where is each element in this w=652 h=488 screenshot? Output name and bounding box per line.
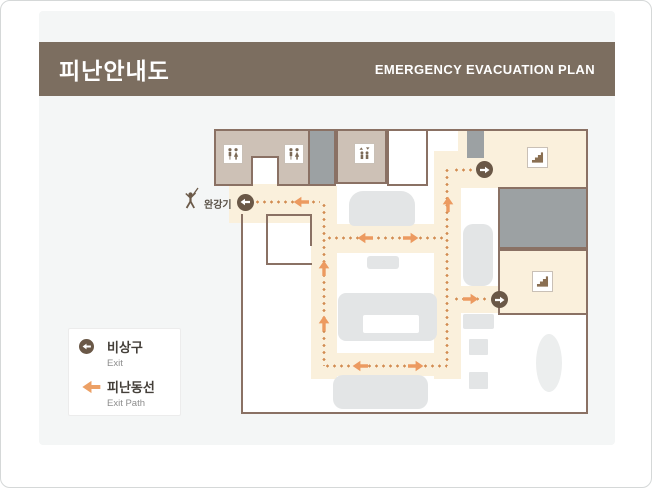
elevator-icon	[354, 143, 375, 164]
furniture-tall-cabinet	[463, 224, 493, 286]
path-arrow-icon	[293, 196, 309, 208]
header-bar: 피난안내도 EMERGENCY EVACUATION PLAN	[39, 42, 615, 96]
exit-circle-icon	[491, 291, 508, 308]
path-arrow-icon	[318, 315, 330, 331]
gray-room-right	[498, 187, 588, 249]
descender-label: 완강기	[204, 196, 232, 211]
exit-path-dotted-bottom	[324, 364, 447, 368]
shaft-block-right	[467, 129, 484, 158]
furniture-table-notch	[363, 315, 419, 333]
exit-path-dotted-top-left	[254, 200, 320, 204]
wall-right	[586, 129, 588, 414]
legend-exit-label: 비상구	[107, 337, 143, 356]
wall-interior-stub	[310, 214, 312, 246]
path-arrow-icon	[408, 360, 424, 372]
exit-path-dotted-vertical-left	[322, 202, 326, 366]
wall-top	[214, 129, 588, 131]
furniture-ellipse	[536, 334, 562, 392]
restroom-icon	[284, 144, 304, 164]
path-arrow-icon	[318, 260, 330, 276]
shaft-block-top	[308, 129, 336, 186]
room-top-center	[387, 129, 428, 186]
furniture-box-2	[469, 372, 488, 389]
furniture-sofa	[349, 191, 415, 226]
page-title: 피난안내도	[59, 52, 170, 86]
legend-path-label: 피난동선	[107, 377, 155, 396]
exit-path-dotted-top-right	[453, 168, 475, 172]
room-left-interior	[266, 214, 312, 265]
legend-path-arrow-icon	[81, 380, 101, 394]
exit-circle-icon	[237, 194, 254, 211]
furniture-bottom-table	[333, 375, 428, 409]
descender-person-icon	[184, 187, 201, 210]
furniture-box-1	[469, 339, 488, 355]
legend-path-sublabel: Exit Path	[107, 398, 145, 409]
path-arrow-icon	[352, 360, 368, 372]
restroom-door-opening	[253, 184, 277, 188]
wall-bottom	[241, 412, 588, 414]
legend-box: 비상구 Exit 피난동선 Exit Path	[68, 328, 181, 416]
legend-exit-sublabel: Exit	[107, 358, 123, 369]
path-arrow-icon	[442, 196, 454, 212]
restroom-doorway	[251, 156, 279, 186]
page-subtitle: EMERGENCY EVACUATION PLAN	[375, 62, 595, 77]
restroom-icon	[223, 144, 243, 164]
path-arrow-icon	[463, 293, 479, 305]
wall-left	[241, 214, 243, 414]
furniture-counter	[463, 314, 494, 329]
evacuation-plan-page: 피난안내도 EMERGENCY EVACUATION PLAN	[0, 0, 652, 488]
stairs-icon	[527, 147, 548, 168]
exit-circle-icon	[476, 161, 493, 178]
exit-path-dotted-middle	[326, 236, 447, 240]
stairs-icon	[532, 271, 553, 292]
path-arrow-icon	[403, 232, 419, 244]
furniture-small-table	[367, 256, 399, 269]
legend-exit-circle-icon	[79, 339, 94, 354]
path-arrow-icon	[357, 232, 373, 244]
